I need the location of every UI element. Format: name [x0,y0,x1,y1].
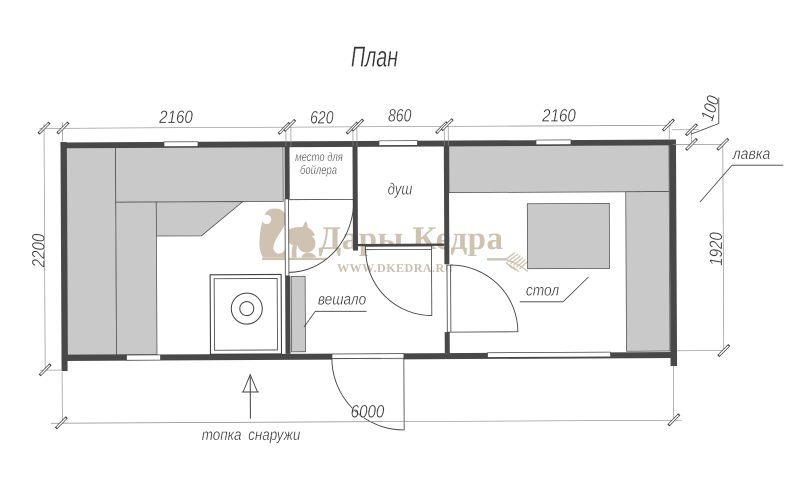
svg-text:План: План [351,42,398,74]
svg-text:1920: 1920 [706,232,726,266]
svg-text:100: 100 [697,93,724,123]
svg-text:топка снаружи: топка снаружи [202,427,301,444]
svg-text:бойлера: бойлера [300,163,337,177]
svg-text:Дары Кедра: Дары Кедра [318,221,503,257]
svg-text:620: 620 [310,107,333,127]
svg-text:вешало: вешало [318,292,366,309]
svg-text:WWW.DKEDRA.RU: WWW.DKEDRA.RU [337,261,454,275]
svg-text:2160: 2160 [158,107,192,127]
svg-text:место для: место для [295,150,343,164]
svg-text:стол: стол [526,283,559,300]
svg-text:6000: 6000 [351,402,385,422]
svg-text:душ: душ [388,181,413,199]
svg-text:2160: 2160 [541,106,575,126]
svg-text:2200: 2200 [29,234,49,268]
svg-text:лавка: лавка [732,146,771,163]
svg-text:860: 860 [388,106,411,126]
